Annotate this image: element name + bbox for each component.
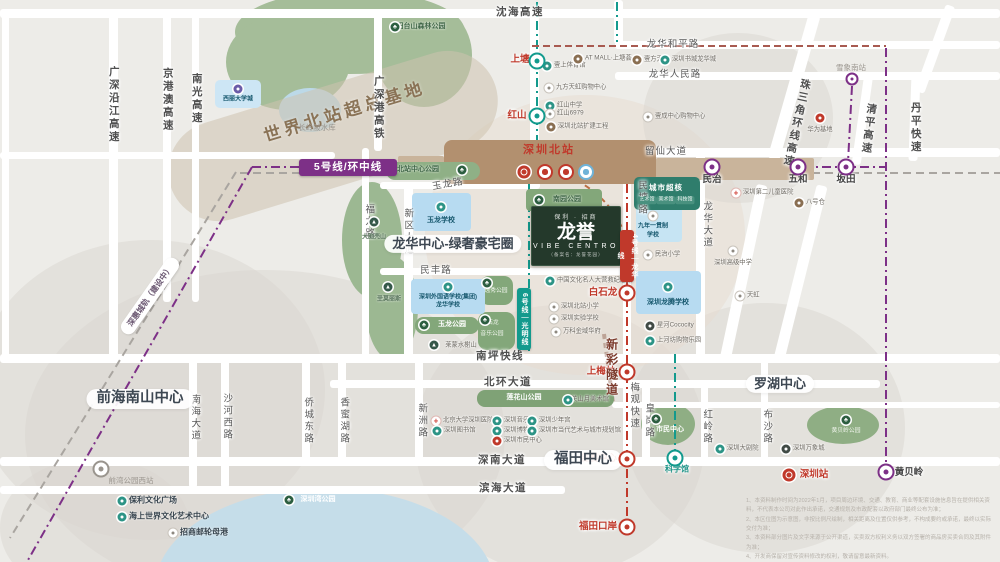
red-icon — [816, 114, 825, 123]
poi-label: 深圳第二儿童医院 — [743, 190, 793, 197]
metro-station-icon — [790, 159, 807, 176]
project-developers: 保利 · 招商 — [532, 212, 620, 221]
red-icon — [493, 437, 502, 446]
map-label: 深圳站 — [800, 470, 829, 480]
grayw-icon — [550, 303, 559, 312]
map-label: 沙河西路 — [221, 393, 231, 441]
teal-icon — [528, 427, 537, 436]
poi-label: 深圳北站扩建工程 — [558, 124, 608, 131]
map-label: 深圳外国语学校(集团) — [419, 295, 477, 302]
map-label: 艺术馆 — [637, 196, 656, 204]
map-label: 坂田 — [836, 175, 855, 185]
leaf-icon: ♣ — [391, 23, 400, 32]
poi-dot — [531, 430, 534, 433]
map-label: 前海南山中心 — [87, 389, 194, 409]
map-label: 香蜜湖路 — [338, 397, 348, 445]
poi-label: 深圳市民中心 — [504, 438, 542, 445]
poi-dot — [549, 105, 552, 108]
leaf-icon: ♣ — [483, 279, 492, 288]
map-label: 逸秀公园 — [484, 288, 507, 294]
leaf-icon: ♣ — [481, 316, 490, 325]
map-label: 前湾公园西站 — [109, 477, 154, 485]
poi-dot — [553, 306, 556, 309]
map-label: 南园公园 — [553, 196, 581, 204]
metro-line6-badge: 6号线｜光明线 — [517, 288, 531, 350]
leaf-icon: ♣ — [842, 416, 851, 425]
teal-icon — [433, 427, 442, 436]
map-label: 留仙大道 — [645, 147, 687, 157]
map-label: 广深港高铁 — [372, 76, 384, 141]
poi-label: 深圳书城龙华城 — [672, 57, 716, 64]
cross-icon: + — [732, 189, 741, 198]
metro-station-icon — [619, 364, 636, 381]
teal-icon — [646, 337, 655, 346]
poi-label: 九方天虹购物中心 — [556, 85, 606, 92]
poi-dot — [496, 430, 499, 433]
metro-station-icon — [578, 164, 594, 180]
brown-icon — [547, 123, 556, 132]
metro-station-icon — [529, 108, 546, 125]
map-label: 民丰路 — [420, 266, 452, 276]
map-label: 龙华大道 — [701, 201, 711, 249]
station-dot — [843, 164, 848, 169]
map-label: 黄贝岭公园 — [832, 428, 861, 434]
poi-label: 深圳图书馆 — [444, 428, 475, 435]
poi-dot — [121, 500, 124, 503]
teal-icon — [716, 445, 725, 454]
disclaimer-line: 3、本资料部分图片及文字来源于公开渠道，买卖双方权利义务以双方签署的商品房买卖合… — [746, 534, 996, 553]
station-dot — [563, 169, 568, 174]
poi-dot — [664, 59, 667, 62]
poi-label: 天虹 — [747, 293, 760, 300]
poi-label: 深圳大剧院 — [727, 446, 758, 453]
rail-ring — [786, 472, 793, 479]
map-label: 白石龙 — [589, 288, 618, 298]
poi-dot — [553, 318, 556, 321]
station-dot — [542, 169, 547, 174]
map-label: 福田中心 — [544, 450, 622, 470]
cross-icon: + — [432, 417, 441, 426]
map-label: 音乐公园 — [480, 331, 503, 337]
map-label: 梅观快速 — [628, 382, 638, 430]
teal-icon — [118, 497, 127, 506]
disclaimer-line: 2、本区位图为示意图，非按比例尺绘制，相关距离及位置仅供参考，不构成要约或承诺，… — [746, 516, 996, 535]
map-label: 玉龙公园 — [438, 321, 466, 329]
station-dot — [709, 164, 714, 169]
poi-label: AT MALL·上塘荟 — [585, 56, 632, 63]
poi-dot — [798, 202, 801, 205]
brown-icon — [574, 55, 583, 64]
leaf-icon: ♣ — [458, 166, 467, 175]
brown-icon — [795, 199, 804, 208]
project-name-en: VIBE CENTRO — [532, 243, 620, 250]
mtn-icon: ▲ — [370, 218, 379, 227]
station-dot — [624, 524, 629, 529]
station-dot — [534, 58, 539, 63]
poi-dot — [121, 516, 124, 519]
poi-label: 壹成中心购物中心 — [655, 114, 705, 121]
map-label: 广深沿江高速 — [107, 66, 119, 144]
metro-station-icon — [537, 164, 553, 180]
teal-icon — [564, 396, 573, 405]
mtn-icon: ▲ — [384, 283, 393, 292]
map-label: 丹平快速 — [909, 102, 921, 154]
map-zone — [412, 193, 471, 231]
poi-dot — [549, 280, 552, 283]
poi-dot — [550, 126, 553, 129]
grayw-icon — [644, 113, 653, 122]
teal-icon — [546, 277, 555, 286]
map-label: 深圳龙腾学校 — [647, 299, 689, 307]
teal-icon — [661, 56, 670, 65]
map-label: 京港澳高速 — [161, 68, 173, 133]
map-label: 圣莫丽斯 — [377, 297, 401, 304]
poi-label: 深圳万象城 — [793, 446, 824, 453]
map-label: 侨城东路 — [302, 397, 312, 445]
grayw-icon — [736, 292, 745, 301]
grayw-icon — [729, 247, 738, 256]
teal-icon — [437, 203, 446, 212]
project-card: 保利 · 招商 龙誉 VIBE CENTRO （备案名：龙誉花园） — [531, 206, 621, 266]
map-label: 龙华人民路 — [649, 70, 702, 80]
disclaimer-line: 4、开发商保留对宣传资料修改的权利，敬请留意最新资料。 — [746, 553, 996, 562]
poi-dot — [440, 206, 443, 209]
metro-line5-badge: 5号线/环中线 — [299, 159, 397, 176]
map-label: 大脑壳山 — [362, 235, 386, 242]
grayw-icon — [546, 110, 555, 119]
map-label: 长岭陂水库 — [298, 124, 336, 132]
map-label: 布沙路 — [761, 409, 771, 445]
map-label: 上塘 — [510, 55, 529, 65]
metro-station-icon — [838, 159, 855, 176]
location-map: 世界北站超总基地 深圳北站 5号线/环中线 4号线｜龙华线 6号线｜光明线 深惠… — [0, 0, 1000, 562]
poi-dot — [649, 325, 652, 328]
map-label: 民治 — [702, 175, 721, 185]
poi-dot — [531, 420, 534, 423]
poi-dot — [636, 59, 639, 62]
station-dot — [624, 369, 629, 374]
metro-station-icon — [619, 451, 636, 468]
map-label: 市民中心 — [656, 426, 684, 434]
map-label: 龙华和平路 — [647, 40, 700, 50]
project-subtitle: （备案名：龙誉花园） — [532, 252, 620, 258]
poi-label: 红山中学 — [557, 103, 582, 110]
metro-line4-badge: 4号线｜龙华线 — [620, 230, 634, 282]
map-label: 城市超核 — [649, 184, 683, 192]
railway-station-icon — [783, 469, 796, 482]
poi-label: 深圳高级中学 — [714, 260, 752, 267]
poi-label: 星河Cococity — [657, 323, 694, 330]
map-label: 深南大道 — [478, 455, 526, 467]
poi-label: 华为基地 — [807, 127, 832, 134]
teal-icon — [664, 283, 673, 292]
poi-dot — [647, 116, 650, 119]
map-label: 阳台山森林公园 — [397, 23, 446, 31]
grayw-icon — [552, 328, 561, 337]
disclaimer: 1、本资料制作时间为2022年1月，项目周边环境、交通、教育、商业等配套设施信息… — [746, 497, 996, 562]
dark-icon — [782, 445, 791, 454]
poi-label: 北京大学深圳医院 — [443, 418, 493, 425]
metro-station-icon — [619, 285, 636, 302]
map-label: 福田口岸 — [579, 522, 617, 532]
station-dot — [672, 455, 677, 460]
poi-dot — [172, 532, 175, 535]
map-label: 南光高速 — [190, 73, 202, 125]
poi-dot — [549, 113, 552, 116]
poi-dot — [732, 250, 735, 253]
poi-label: 海上世界文化艺术中心 — [129, 513, 209, 522]
poi-label: 深圳少年宫 — [539, 418, 570, 425]
grayw-icon — [169, 529, 178, 538]
station-dot — [98, 466, 103, 471]
metro-station-icon — [93, 461, 110, 478]
leaf-icon: ♣ — [420, 321, 429, 330]
grayw-icon — [644, 251, 653, 260]
brown-icon — [633, 56, 642, 65]
poi-dot — [567, 399, 570, 402]
poi-dot — [819, 117, 822, 120]
poi-label: 民治小学 — [655, 252, 680, 259]
map-label: 新洲路 — [416, 403, 426, 439]
map-label: 九年一贯制 — [638, 224, 668, 231]
map-label: 玉龙学校 — [427, 217, 455, 225]
poi-label: 深圳市当代艺术与城市规划馆 — [539, 428, 621, 435]
poi-dot — [548, 87, 551, 90]
map-label: 罗湖中心 — [746, 375, 814, 393]
station-dot — [624, 456, 629, 461]
shenzhen-north-station-label: 深圳北站 — [523, 141, 575, 157]
map-label: 科技馆 — [675, 196, 694, 204]
map-label: 龙华中心-绿奢豪宅圈 — [384, 235, 521, 253]
leaf-icon: ♣ — [285, 496, 294, 505]
map-label: 莲花山公园 — [507, 394, 542, 402]
transit-line — [848, 86, 852, 162]
map-label: 新彩隧道 — [604, 338, 617, 398]
station-dot — [883, 469, 888, 474]
map-label: 沈海高速 — [496, 7, 544, 19]
poi-label: 壹上体育馆 — [554, 63, 585, 70]
dark-icon — [646, 322, 655, 331]
map-label: 学校 — [647, 233, 659, 240]
map-label: 深圳湾公园 — [301, 496, 336, 504]
poi-dot — [719, 448, 722, 451]
disclaimer-line: 1、本资料制作时间为2022年1月，项目周边环境、交通、教育、商业等配套设施信息… — [746, 497, 996, 516]
poi-dot — [496, 420, 499, 423]
purple-icon — [234, 85, 243, 94]
poi-dot — [237, 88, 240, 91]
map-label: 南坪快线 — [476, 351, 524, 363]
railway-station-icon — [518, 166, 531, 179]
map-label: 西丽大学城 — [223, 97, 253, 104]
poi-label: 保利文化广场 — [129, 497, 177, 506]
poi-label: 万科金域华府 — [563, 329, 601, 336]
poi-dot — [647, 254, 650, 257]
teal-icon — [528, 417, 537, 426]
metro-station-icon — [619, 519, 636, 536]
poi-dot — [649, 340, 652, 343]
poi-label: 招商邮轮母港 — [180, 529, 228, 538]
map-label: 北环大道 — [484, 377, 532, 389]
map-label: 莱蒙水榭山 — [445, 343, 476, 350]
poi-dot — [555, 331, 558, 334]
teal-icon — [118, 513, 127, 522]
grayw-icon — [550, 315, 559, 324]
poi-label: 深圳北站小学 — [561, 304, 599, 311]
grayw-icon — [649, 212, 658, 221]
map-label: 美术馆 — [656, 196, 675, 204]
leaf-icon: ♣ — [652, 415, 661, 424]
teal-icon — [493, 417, 502, 426]
metro-station-icon — [704, 159, 721, 176]
teal-icon — [493, 427, 502, 436]
station-dot — [534, 113, 539, 118]
poi-label: 红山6979 — [557, 111, 584, 118]
poi-dot — [577, 58, 580, 61]
station-dot — [583, 169, 588, 174]
map-zone — [636, 271, 701, 314]
map-label: 北站中心公园 — [397, 166, 439, 174]
poi-label: 深圳实验学校 — [561, 316, 599, 323]
map-label: 五和 — [788, 175, 807, 185]
map-label: 红山 — [507, 111, 526, 121]
poi-dot — [652, 215, 655, 218]
metro-station-icon — [878, 464, 895, 481]
poi-dot — [785, 448, 788, 451]
map-label: 雪象南站 — [836, 64, 866, 72]
metro-station-icon — [667, 450, 684, 467]
mtn-icon: ▲ — [430, 341, 439, 350]
rail-ring — [521, 169, 528, 176]
map-label: 红岭路 — [701, 409, 711, 445]
poi-dot — [447, 286, 450, 289]
metro-station-icon — [846, 73, 859, 86]
station-dot — [850, 77, 854, 81]
metro-station-icon — [558, 164, 574, 180]
poi-dot — [436, 430, 439, 433]
station-dot — [795, 164, 800, 169]
poi-label: 八号仓 — [806, 200, 825, 207]
map-label: 龙华学校 — [436, 303, 460, 310]
map-label: 科学馆 — [665, 466, 689, 475]
poi-label: 上河坊购物乐园 — [657, 338, 701, 345]
map-label: 黄贝岭 — [895, 468, 924, 478]
leaf-icon: ♣ — [535, 196, 544, 205]
teal-icon — [444, 283, 453, 292]
map-label: 关山月美术馆 — [571, 397, 609, 404]
poi-dot — [496, 440, 499, 443]
poi-dot — [546, 65, 549, 68]
grayw-icon — [545, 84, 554, 93]
poi-dot — [739, 295, 742, 298]
poi-dot — [667, 286, 670, 289]
map-label: 滨海大道 — [479, 483, 527, 495]
station-dot — [624, 290, 629, 295]
metro-station-icon — [529, 53, 546, 70]
project-name: 龙誉 — [532, 222, 620, 242]
